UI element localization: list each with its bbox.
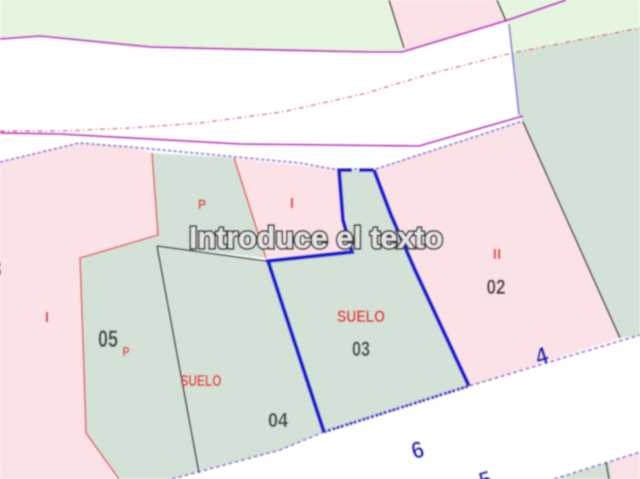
svg-text:04: 04 xyxy=(268,410,289,432)
svg-text:P: P xyxy=(198,196,206,212)
svg-text:05: 05 xyxy=(98,326,118,353)
svg-text:I: I xyxy=(45,309,49,326)
svg-text:Introduce el texto: Introduce el texto xyxy=(189,220,443,255)
svg-text:SUELO: SUELO xyxy=(181,373,222,390)
svg-text:3: 3 xyxy=(0,256,2,283)
svg-text:II: II xyxy=(493,246,501,263)
svg-text:P: P xyxy=(123,344,130,359)
svg-text:SUELO: SUELO xyxy=(337,307,385,326)
svg-text:03: 03 xyxy=(352,338,370,361)
svg-text:02: 02 xyxy=(487,276,506,299)
svg-text:I: I xyxy=(290,195,294,212)
